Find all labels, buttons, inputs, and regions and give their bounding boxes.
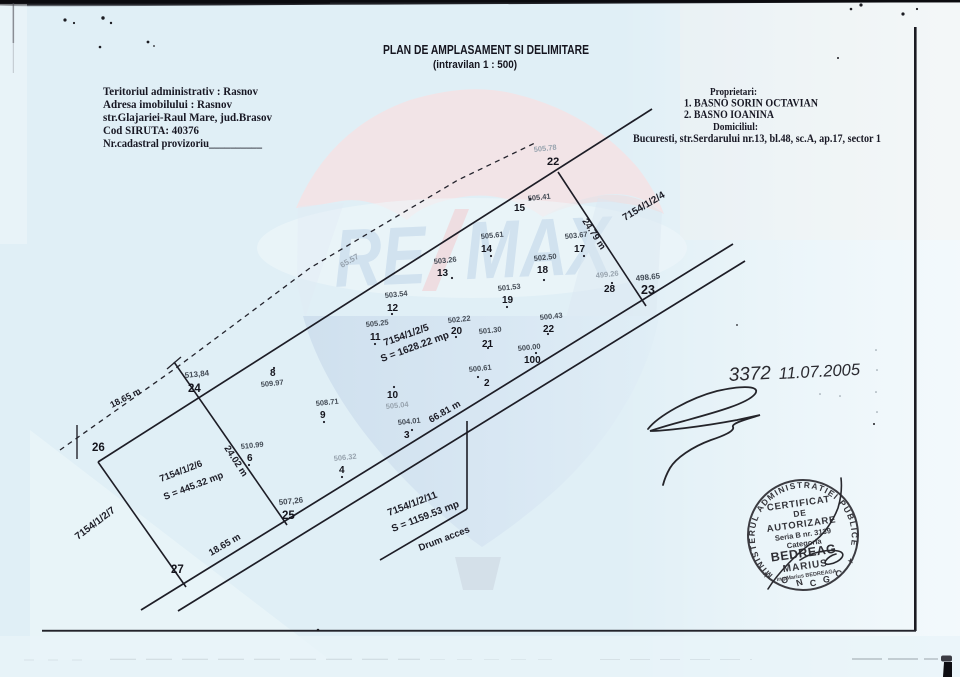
svg-text:1. BASNO SORIN OCTAVIAN: 1. BASNO SORIN OCTAVIAN	[684, 98, 819, 110]
svg-text:25: 25	[282, 510, 295, 522]
svg-text:8: 8	[270, 368, 276, 379]
svg-text:19: 19	[502, 295, 514, 306]
svg-text:(intravilan 1 : 500): (intravilan 1 : 500)	[433, 59, 517, 71]
svg-text:Nr.cadastral provizoriu_______: Nr.cadastral provizoriu__________	[103, 136, 263, 150]
svg-text:17: 17	[574, 244, 586, 255]
svg-text:27: 27	[171, 564, 184, 576]
svg-text:11: 11	[370, 332, 381, 343]
svg-text:Cod SIRUTA: 40376: Cod SIRUTA: 40376	[103, 123, 199, 137]
svg-text:2. BASNO IOANINA: 2. BASNO IOANINA	[684, 109, 775, 121]
svg-text:10: 10	[387, 390, 399, 401]
svg-text:15: 15	[514, 203, 526, 214]
svg-text:★: ★	[847, 556, 855, 566]
svg-text:Adresa imobilului : Rasnov: Adresa imobilului : Rasnov	[103, 97, 232, 111]
svg-text:Bucuresti, str.Serdarului nr.1: Bucuresti, str.Serdarului nr.13, bl.48, …	[633, 133, 881, 145]
svg-text:23: 23	[641, 283, 655, 297]
svg-text:12: 12	[387, 303, 399, 314]
svg-text:PLAN DE AMPLASAMENT SI DELIMIT: PLAN DE AMPLASAMENT SI DELIMITARE	[383, 43, 589, 57]
svg-text:28: 28	[604, 284, 616, 295]
svg-text:100: 100	[524, 355, 541, 366]
svg-text:4: 4	[339, 465, 345, 476]
svg-text:18: 18	[537, 265, 549, 276]
svg-text:14: 14	[481, 244, 493, 255]
svg-text:24: 24	[188, 383, 201, 395]
svg-text:Teritoriul administrativ : Ra: Teritoriul administrativ : Rasnov	[103, 84, 258, 98]
svg-text:str.Glajariei-Raul Mare, jud.B: str.Glajariei-Raul Mare, jud.Brasov	[103, 110, 272, 124]
svg-text:22: 22	[547, 156, 559, 168]
svg-text:2: 2	[484, 378, 490, 389]
svg-text:9: 9	[320, 410, 326, 421]
svg-text:DE: DE	[793, 507, 808, 519]
svg-text:3372: 3372	[728, 363, 772, 386]
svg-text:3: 3	[404, 430, 410, 441]
svg-text:13: 13	[437, 268, 449, 279]
svg-text:6: 6	[247, 453, 253, 464]
svg-text:★: ★	[762, 570, 770, 580]
svg-text:20: 20	[451, 326, 463, 337]
svg-text:Domiciliul:: Domiciliul:	[713, 121, 758, 133]
svg-text:26: 26	[92, 442, 105, 454]
svg-text:Proprietari:: Proprietari:	[710, 86, 757, 98]
